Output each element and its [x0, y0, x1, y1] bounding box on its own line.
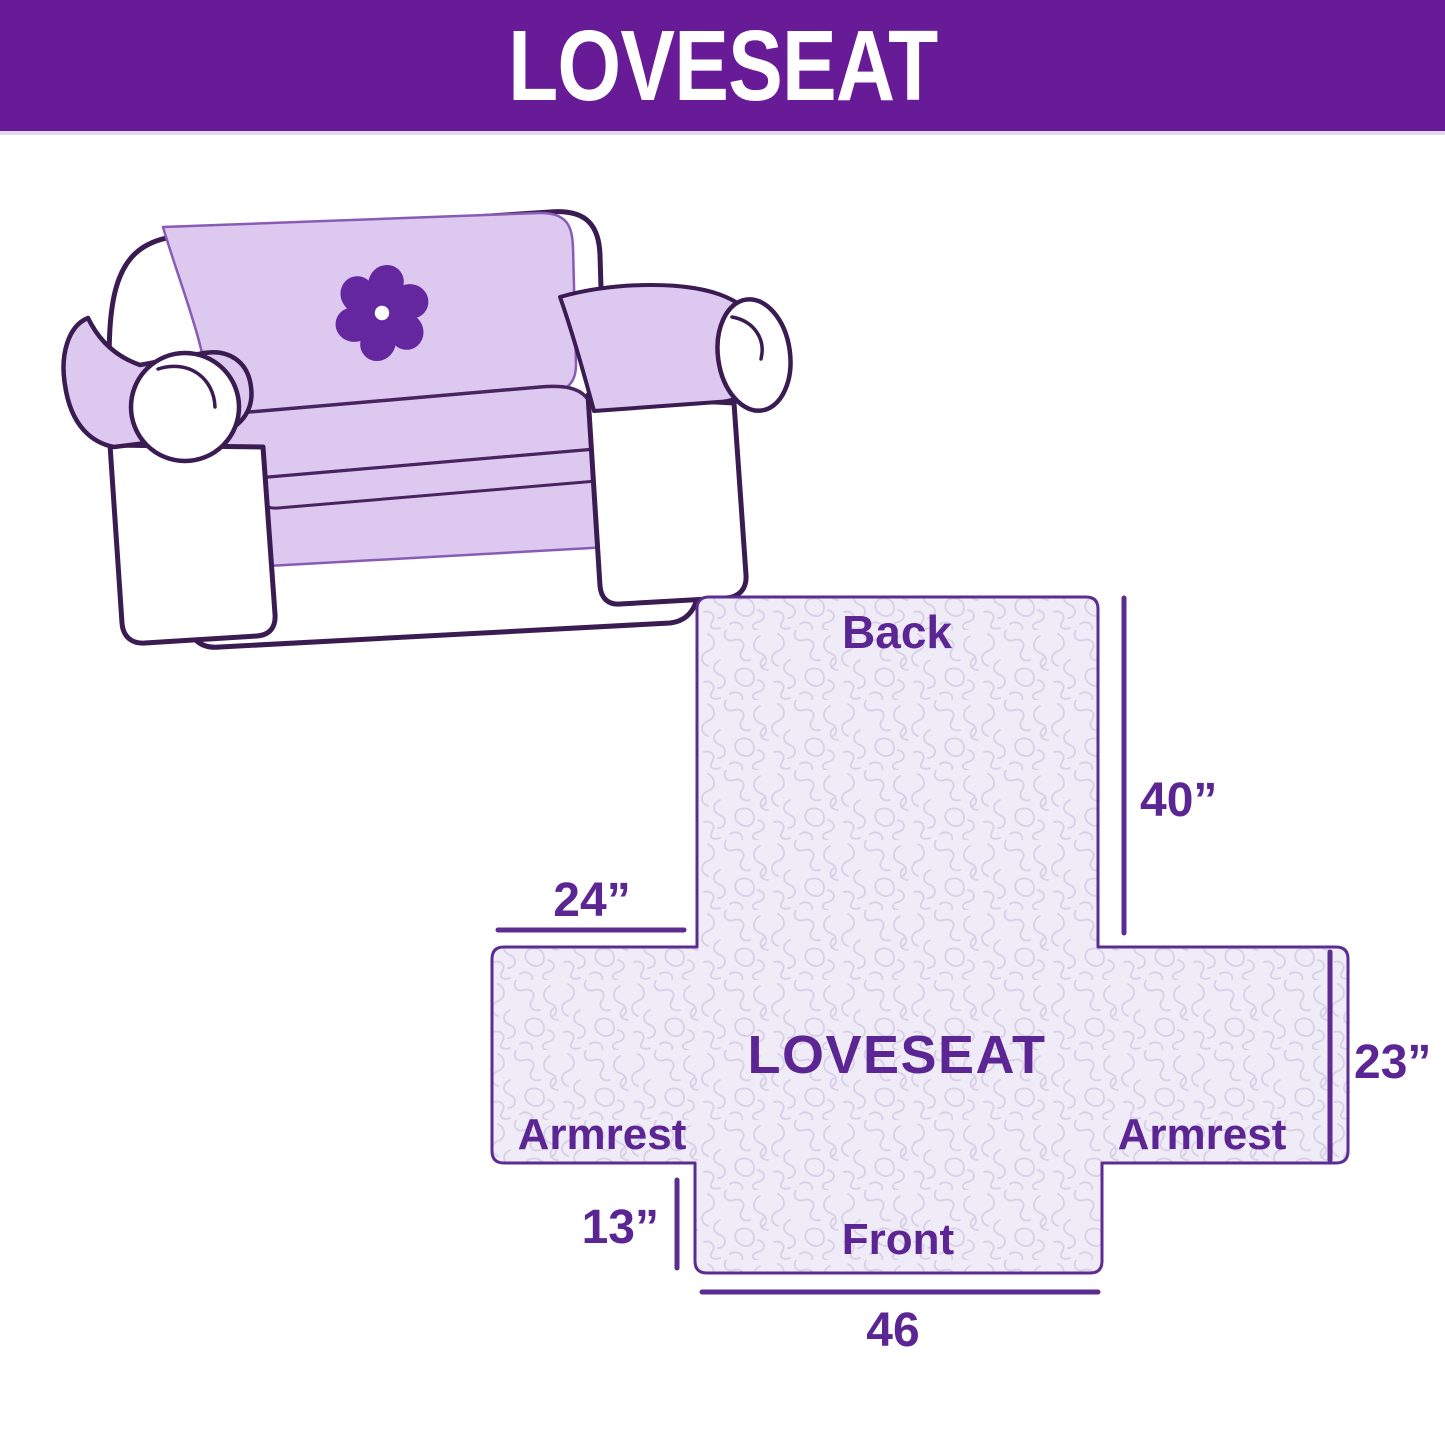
- dim-armrest-width: 24”: [553, 874, 630, 927]
- page: LOVESEAT: [0, 0, 1445, 1445]
- cover-shape: [492, 597, 1348, 1273]
- label-center: LOVESEAT: [747, 1025, 1046, 1085]
- cover-diagram: Back LOVESEAT Armrest Armrest Front 40” …: [0, 0, 1445, 1445]
- dim-front-width: 46: [866, 1304, 919, 1357]
- label-armrest-left: Armrest: [518, 1110, 687, 1159]
- label-front: Front: [842, 1215, 955, 1264]
- dim-front-drop: 13”: [582, 1201, 659, 1254]
- dim-side-depth: 23”: [1354, 1036, 1431, 1089]
- label-armrest-right: Armrest: [1118, 1110, 1287, 1159]
- dim-back-height: 40”: [1140, 774, 1217, 827]
- label-back: Back: [842, 606, 952, 658]
